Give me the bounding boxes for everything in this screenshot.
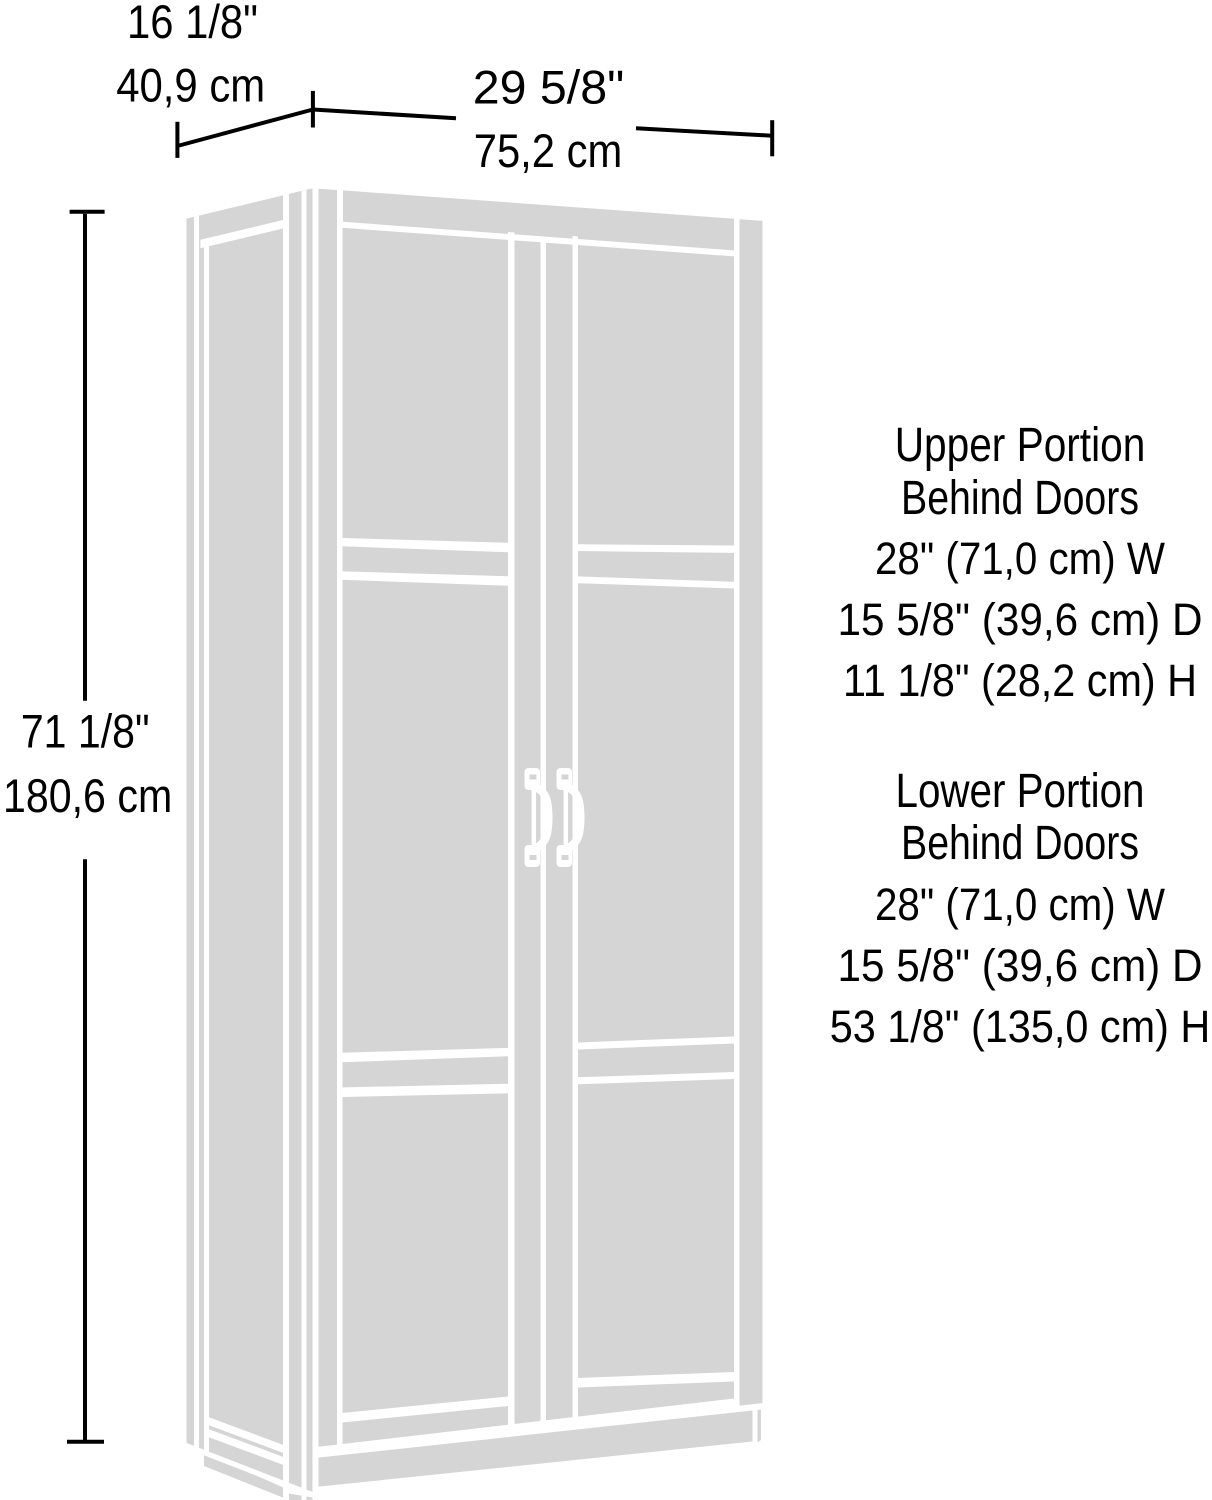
svg-text:40,9 cm: 40,9 cm — [116, 59, 265, 112]
svg-text:11 1/8" (28,2 cm) H: 11 1/8" (28,2 cm) H — [843, 655, 1197, 706]
svg-text:Lower Portion: Lower Portion — [896, 765, 1145, 818]
svg-text:Behind Doors: Behind Doors — [901, 472, 1139, 525]
svg-text:28" (71,0 cm) W: 28" (71,0 cm) W — [875, 533, 1165, 584]
svg-text:16 1/8": 16 1/8" — [127, 0, 258, 48]
svg-text:75,2 cm: 75,2 cm — [474, 124, 623, 177]
svg-text:180,6 cm: 180,6 cm — [3, 769, 172, 822]
svg-text:29 5/8": 29 5/8" — [473, 61, 625, 114]
svg-text:Upper Portion: Upper Portion — [895, 419, 1146, 472]
svg-text:15 5/8" (39,6 cm) D: 15 5/8" (39,6 cm) D — [838, 940, 1203, 991]
svg-text:28" (71,0 cm) W: 28" (71,0 cm) W — [875, 879, 1165, 930]
svg-text:53 1/8" (135,0 cm) H: 53 1/8" (135,0 cm) H — [830, 1001, 1211, 1052]
svg-text:15 5/8" (39,6 cm) D: 15 5/8" (39,6 cm) D — [838, 594, 1203, 645]
svg-text:Behind Doors: Behind Doors — [901, 817, 1139, 870]
svg-text:71 1/8": 71 1/8" — [21, 704, 150, 757]
